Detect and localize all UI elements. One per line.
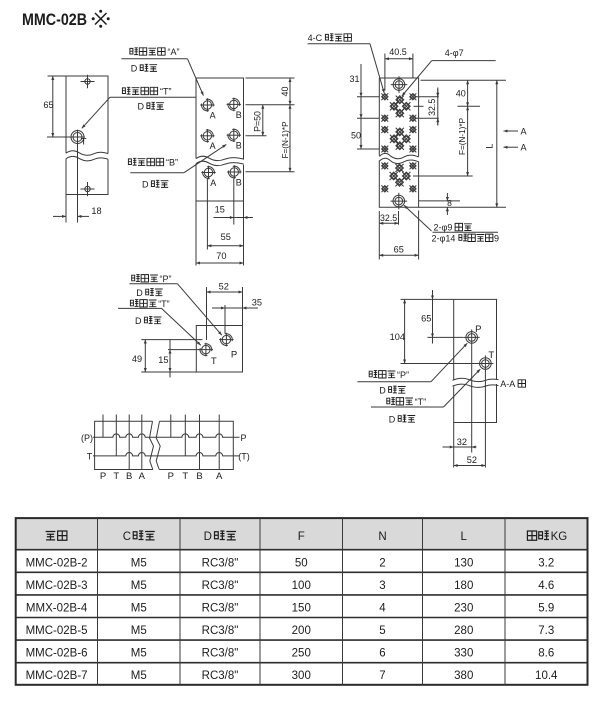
svg-text:8: 8 [447, 198, 452, 208]
svg-text:3: 3 [379, 580, 385, 592]
svg-text:T: T [81, 137, 87, 148]
svg-text:65: 65 [421, 314, 431, 324]
svg-text:52: 52 [467, 455, 477, 465]
svg-text:P: P [100, 471, 106, 482]
svg-text:MMC-02B-6: MMC-02B-6 [26, 648, 88, 660]
svg-text:18: 18 [91, 206, 101, 216]
svg-text:M5: M5 [131, 603, 147, 615]
svg-text:D: D [379, 385, 386, 395]
svg-text:50: 50 [295, 557, 308, 569]
svg-text:D: D [135, 316, 142, 326]
svg-text:104: 104 [390, 332, 405, 342]
svg-text:5: 5 [379, 625, 385, 637]
svg-text:A: A [210, 178, 216, 188]
svg-text:49: 49 [132, 354, 142, 364]
svg-text:2: 2 [379, 557, 385, 569]
svg-text:“A”: “A” [168, 47, 180, 57]
svg-text:35: 35 [252, 298, 262, 308]
svg-text:P: P [231, 349, 237, 360]
svg-text:D: D [389, 414, 396, 424]
svg-text:65: 65 [43, 100, 53, 110]
svg-text:31: 31 [349, 74, 359, 84]
svg-text:M5: M5 [131, 670, 147, 682]
svg-text:B: B [236, 177, 242, 187]
svg-text:B: B [236, 141, 242, 151]
svg-text:RC3/8": RC3/8" [202, 648, 239, 660]
svg-text:D: D [142, 180, 149, 190]
svg-text:65: 65 [394, 244, 404, 254]
svg-text:RC3/8": RC3/8" [202, 580, 239, 592]
svg-text:D: D [204, 531, 212, 543]
svg-text:T: T [87, 451, 93, 461]
svg-text:T: T [488, 350, 494, 361]
svg-text:130: 130 [454, 557, 473, 569]
svg-text:32.5: 32.5 [380, 213, 397, 223]
svg-text:55: 55 [221, 232, 231, 242]
svg-text:9: 9 [494, 233, 499, 243]
svg-text:“T”: “T” [415, 397, 427, 407]
svg-text:P=50: P=50 [252, 111, 262, 132]
svg-text:D: D [136, 288, 143, 298]
svg-text:10.4: 10.4 [535, 670, 558, 682]
svg-text:230: 230 [454, 603, 473, 615]
svg-text:250: 250 [292, 648, 311, 660]
svg-text:“T”: “T” [158, 299, 170, 309]
svg-text:2-φ14: 2-φ14 [432, 233, 456, 243]
svg-text:“B”: “B” [166, 158, 178, 168]
svg-text:MMC-02B-2: MMC-02B-2 [26, 557, 88, 569]
svg-text:(T): (T) [238, 452, 250, 462]
svg-text:D: D [138, 102, 145, 112]
svg-text:300: 300 [292, 670, 311, 682]
svg-text:MMC-02B-7: MMC-02B-7 [26, 670, 88, 682]
svg-text:RC3/8": RC3/8" [202, 603, 239, 615]
svg-text:MMC-02B-5: MMC-02B-5 [26, 625, 88, 637]
svg-text:200: 200 [292, 625, 311, 637]
svg-text:4.6: 4.6 [538, 580, 554, 592]
svg-text:52: 52 [219, 282, 229, 292]
svg-text:T: T [182, 471, 188, 482]
svg-text:280: 280 [454, 625, 473, 637]
svg-text:4-φ7: 4-φ7 [445, 48, 464, 58]
svg-text:100: 100 [292, 580, 311, 592]
svg-text:32.5: 32.5 [427, 99, 437, 116]
svg-text:7.3: 7.3 [538, 625, 554, 637]
svg-text:A: A [210, 110, 216, 120]
svg-text:T: T [113, 471, 119, 482]
svg-text:3.2: 3.2 [538, 557, 554, 569]
svg-text:40: 40 [456, 89, 466, 99]
svg-text:N: N [378, 531, 386, 543]
svg-text:M5: M5 [131, 625, 147, 637]
svg-text:150: 150 [292, 603, 311, 615]
svg-text:A: A [521, 126, 527, 136]
svg-text:B: B [236, 110, 242, 120]
svg-text:330: 330 [454, 648, 473, 660]
svg-text:RC3/8": RC3/8" [202, 670, 239, 682]
svg-text:M5: M5 [131, 557, 147, 569]
svg-text:MMX-02B-4: MMX-02B-4 [26, 603, 88, 615]
svg-text:L: L [484, 144, 494, 149]
svg-text:A-A: A-A [500, 379, 515, 389]
svg-text:32: 32 [457, 437, 467, 447]
svg-text:15: 15 [215, 205, 225, 215]
svg-text:F: F [298, 531, 305, 543]
svg-text:4-C: 4-C [308, 33, 323, 43]
svg-text:8.6: 8.6 [538, 648, 554, 660]
svg-text:M5: M5 [131, 580, 147, 592]
svg-text:“T”: “T” [160, 87, 172, 97]
svg-text:T: T [211, 356, 217, 367]
svg-text:B: B [196, 471, 202, 482]
svg-text:40: 40 [280, 86, 290, 96]
svg-text:A: A [210, 141, 216, 151]
svg-text:L: L [461, 531, 468, 543]
svg-text:180: 180 [454, 580, 473, 592]
svg-text:F=(N-1)*P: F=(N-1)*P [281, 121, 290, 159]
svg-text:70: 70 [216, 251, 226, 261]
svg-text:5.9: 5.9 [538, 603, 554, 615]
svg-text:A: A [139, 471, 146, 482]
svg-text:4: 4 [379, 603, 386, 615]
svg-text:C: C [123, 531, 131, 543]
svg-text:MMC-02B-3: MMC-02B-3 [26, 580, 88, 592]
svg-text:P: P [475, 324, 481, 335]
svg-text:A: A [521, 143, 527, 153]
svg-text:RC3/8": RC3/8" [202, 625, 239, 637]
svg-text:“P”: “P” [160, 274, 172, 284]
svg-text:B: B [126, 471, 132, 482]
svg-text:380: 380 [454, 670, 473, 682]
svg-text:A: A [216, 471, 223, 482]
svg-text:KG: KG [551, 531, 568, 543]
svg-text:2-φ9: 2-φ9 [434, 223, 453, 233]
svg-text:50: 50 [351, 130, 361, 140]
svg-text:15: 15 [158, 355, 168, 365]
svg-text:40.5: 40.5 [389, 47, 407, 57]
svg-text:(P): (P) [81, 433, 93, 443]
svg-text:RC3/8": RC3/8" [202, 557, 239, 569]
svg-text:MMC-02B: MMC-02B [22, 10, 87, 29]
svg-text:M5: M5 [131, 648, 147, 660]
svg-text:P: P [168, 471, 174, 482]
svg-text:F=(N-1)*P: F=(N-1)*P [458, 117, 467, 155]
svg-text:P: P [240, 433, 246, 443]
svg-text:6: 6 [379, 648, 385, 660]
svg-text:D: D [131, 64, 138, 74]
svg-text:7: 7 [379, 670, 385, 682]
svg-text:“P”: “P” [397, 370, 409, 380]
